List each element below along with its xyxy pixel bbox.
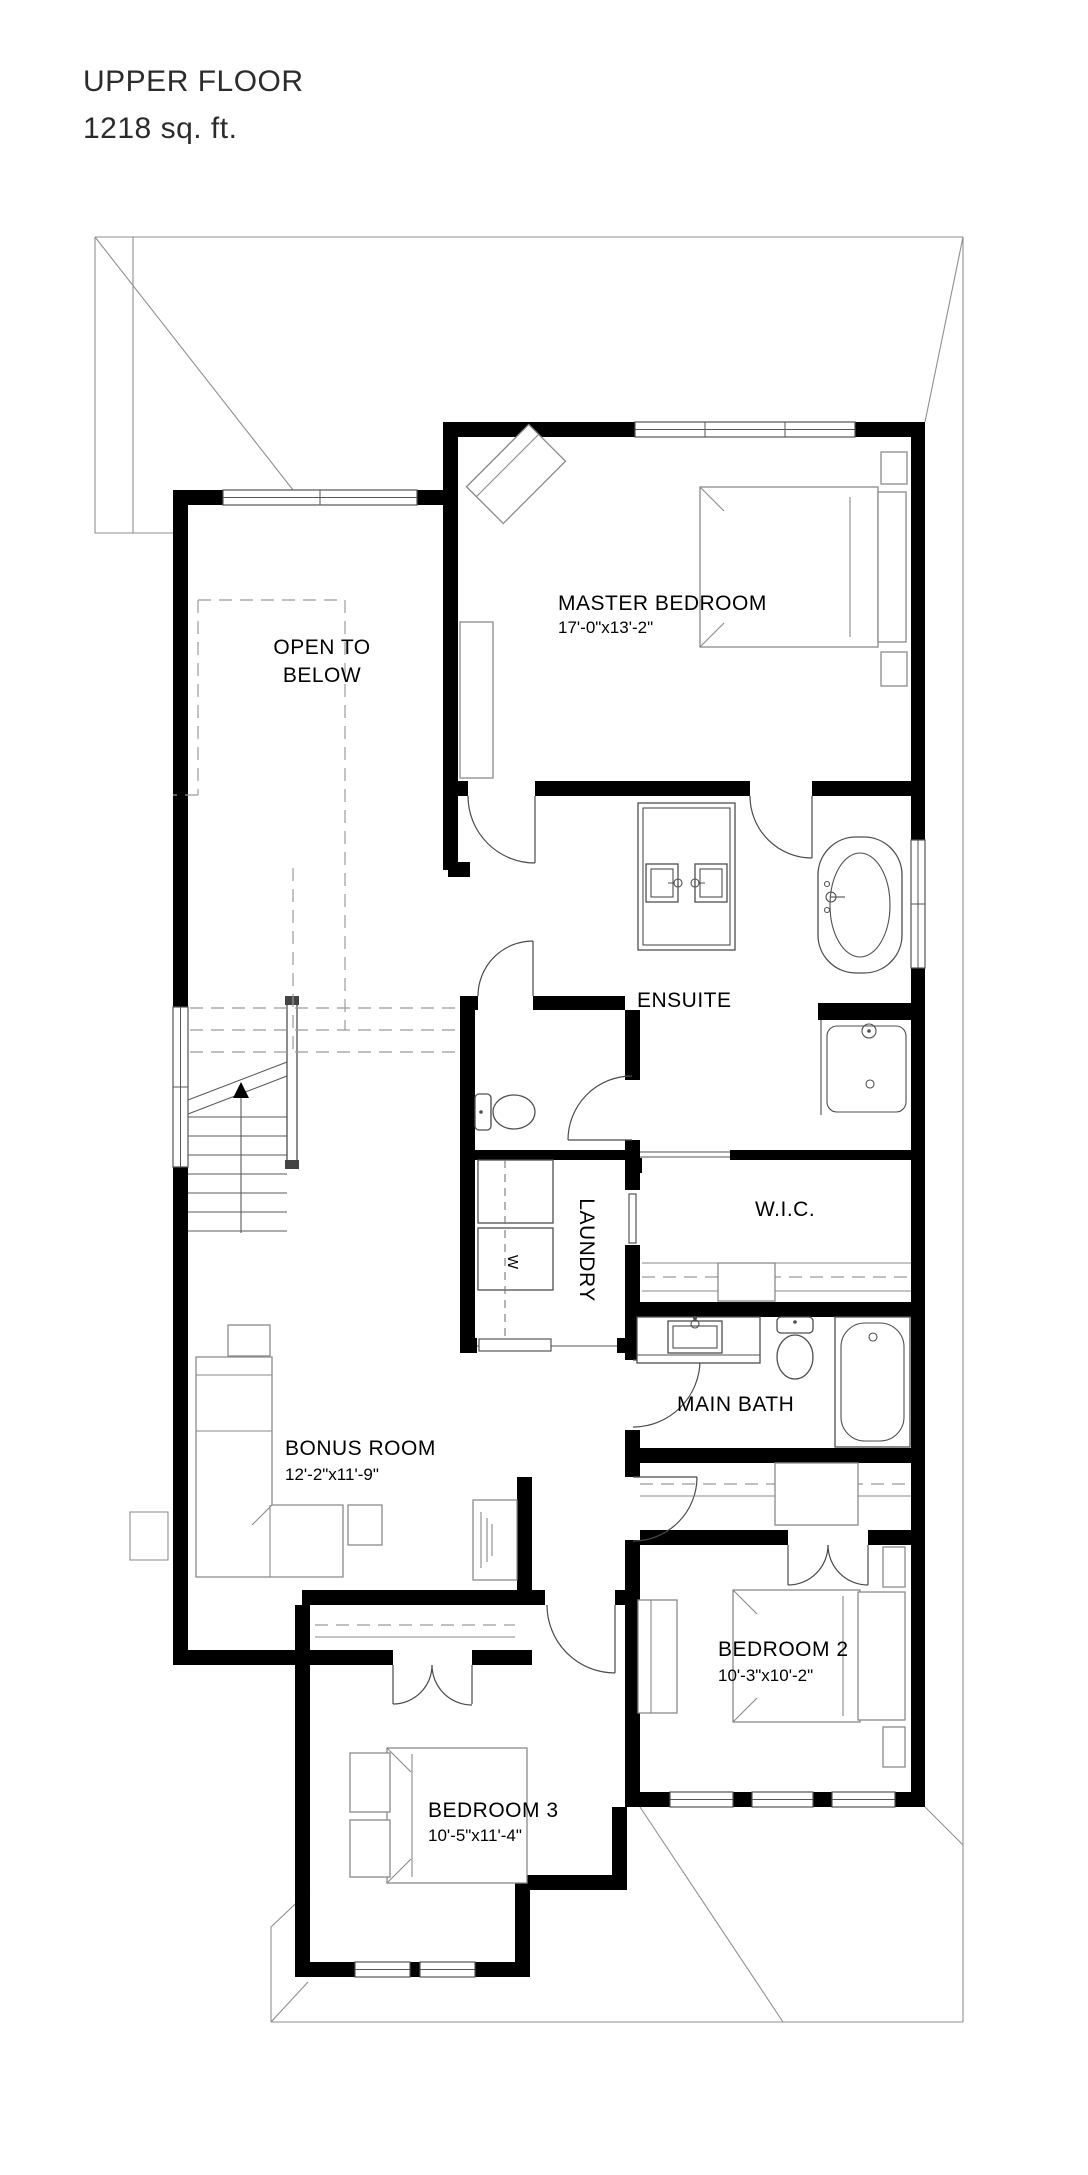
- stair-window: [173, 1007, 188, 1167]
- bedroom2-closet-doors: [788, 1545, 868, 1585]
- bedroom2-dresser: [638, 1600, 677, 1713]
- label-master-bedroom: MASTER BEDROOM: [558, 592, 767, 615]
- ensuite-door: [750, 796, 812, 858]
- shower: [821, 1020, 906, 1115]
- bedroom3-closet-doors: [393, 1665, 472, 1705]
- bedroom3-hall-door: [547, 1605, 615, 1673]
- label-bedroom-3: BEDROOM 3: [428, 1799, 559, 1822]
- dim-master-bedroom: 17'-0"x13'-2": [558, 618, 653, 637]
- main-bath-tub: [835, 1317, 910, 1447]
- main-bath-toilet: [777, 1317, 813, 1379]
- label-ensuite: ENSUITE: [637, 989, 732, 1012]
- accent-chair: [467, 425, 566, 524]
- master-door: [468, 796, 535, 863]
- wic-shelving: [642, 1263, 911, 1301]
- stair-direction-arrow: [233, 1082, 249, 1098]
- tv-console: [473, 1500, 517, 1580]
- laundry-pocket-door: [477, 1339, 617, 1351]
- open-below-window: [223, 490, 417, 505]
- ensuite-window: [911, 840, 925, 968]
- label-open-to-below-2: BELOW: [283, 664, 361, 687]
- master-window: [635, 422, 855, 437]
- dim-bedroom-3: 10'-5"x11'-4": [428, 1826, 522, 1845]
- bedroom2-windows: [670, 1792, 895, 1807]
- master-dresser: [460, 622, 493, 778]
- label-wic: W.I.C.: [755, 1198, 815, 1221]
- floor-plan-drawing: MASTER BEDROOM 17'-0"x13'-2" OPEN TO BEL…: [0, 0, 1088, 2175]
- stairs: [188, 1062, 287, 1233]
- chimney: [130, 1512, 168, 1560]
- label-laundry: LAUNDRY: [575, 1198, 598, 1301]
- main-bath-vanity: [637, 1316, 760, 1363]
- ensuite-vanity: [638, 803, 735, 950]
- label-washer: W: [504, 1255, 521, 1270]
- wc-ensuite-door: [568, 1076, 632, 1140]
- wc-toilet: [475, 1094, 535, 1130]
- dim-bedroom-2: 10'-3"x10'-2": [718, 1666, 813, 1685]
- stair-railing: [285, 996, 299, 1169]
- label-main-bath: MAIN BATH: [677, 1393, 794, 1416]
- washer-dryer: [478, 1160, 553, 1337]
- dim-bonus-room: 12'-2"x11'-9": [285, 1465, 379, 1484]
- freestanding-tub: [818, 837, 902, 973]
- bedroom3-closet-shelving: [315, 1625, 515, 1637]
- side-table: [228, 1325, 270, 1356]
- wic-opening-header: [640, 1152, 730, 1157]
- bedroom2-closet-shelving: [640, 1463, 911, 1525]
- label-bedroom-2: BEDROOM 2: [718, 1638, 849, 1661]
- end-table: [348, 1505, 382, 1545]
- wc-hall-door: [478, 941, 533, 996]
- label-open-to-below-1: OPEN TO: [273, 636, 370, 659]
- master-bed: [700, 452, 907, 686]
- label-bonus-room: BONUS ROOM: [285, 1437, 436, 1460]
- wic-pocket-door: [629, 1194, 636, 1243]
- floor-plan-page: UPPER FLOOR 1218 sq. ft.: [0, 0, 1088, 2175]
